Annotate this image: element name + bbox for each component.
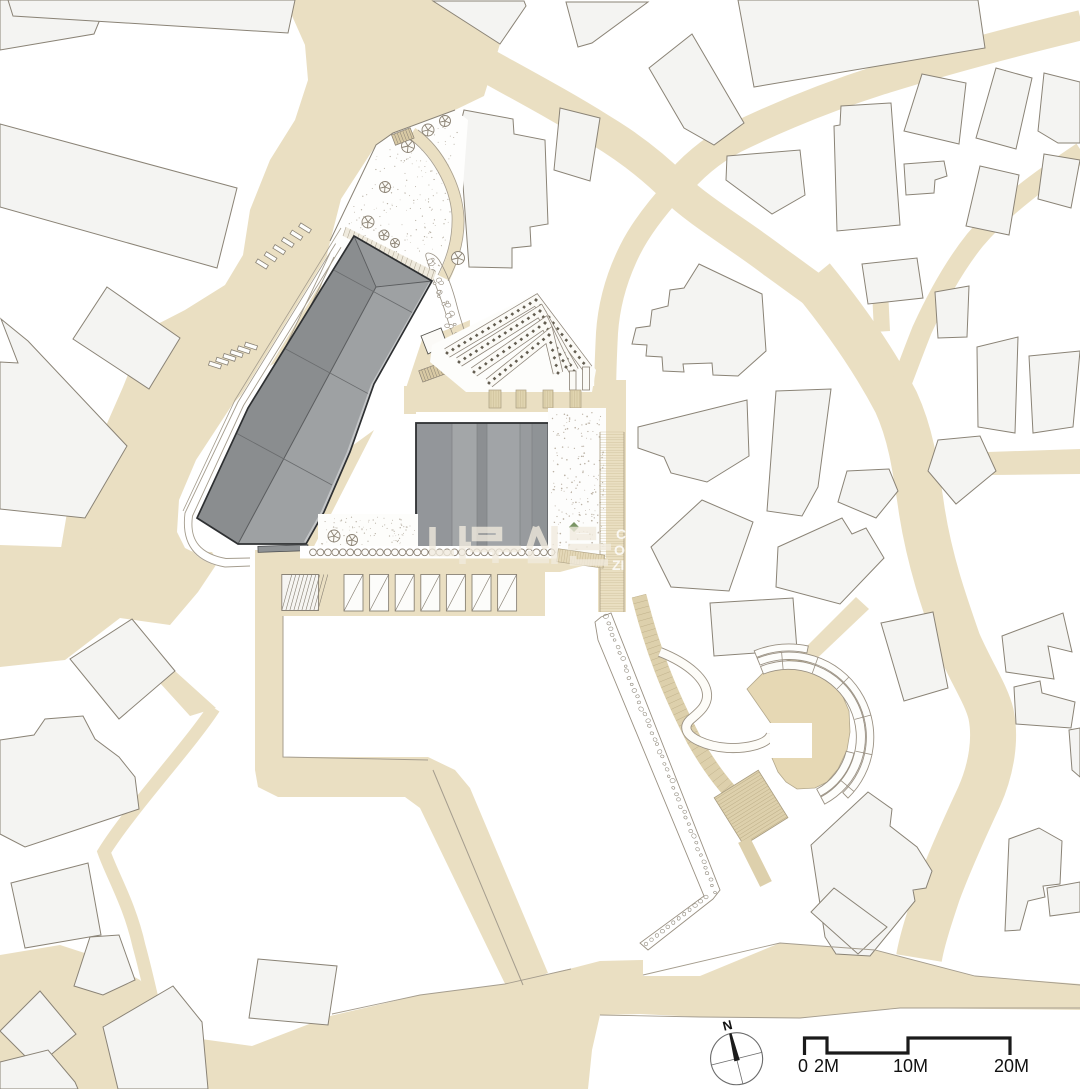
- svg-text:2M: 2M: [814, 1056, 839, 1076]
- svg-text:O: O: [614, 542, 625, 558]
- svg-text:C: C: [616, 526, 626, 542]
- svg-text:10M: 10M: [893, 1056, 928, 1076]
- svg-text:20M: 20M: [994, 1056, 1029, 1076]
- svg-text:0: 0: [798, 1056, 808, 1076]
- svg-text:ZI: ZI: [612, 557, 624, 573]
